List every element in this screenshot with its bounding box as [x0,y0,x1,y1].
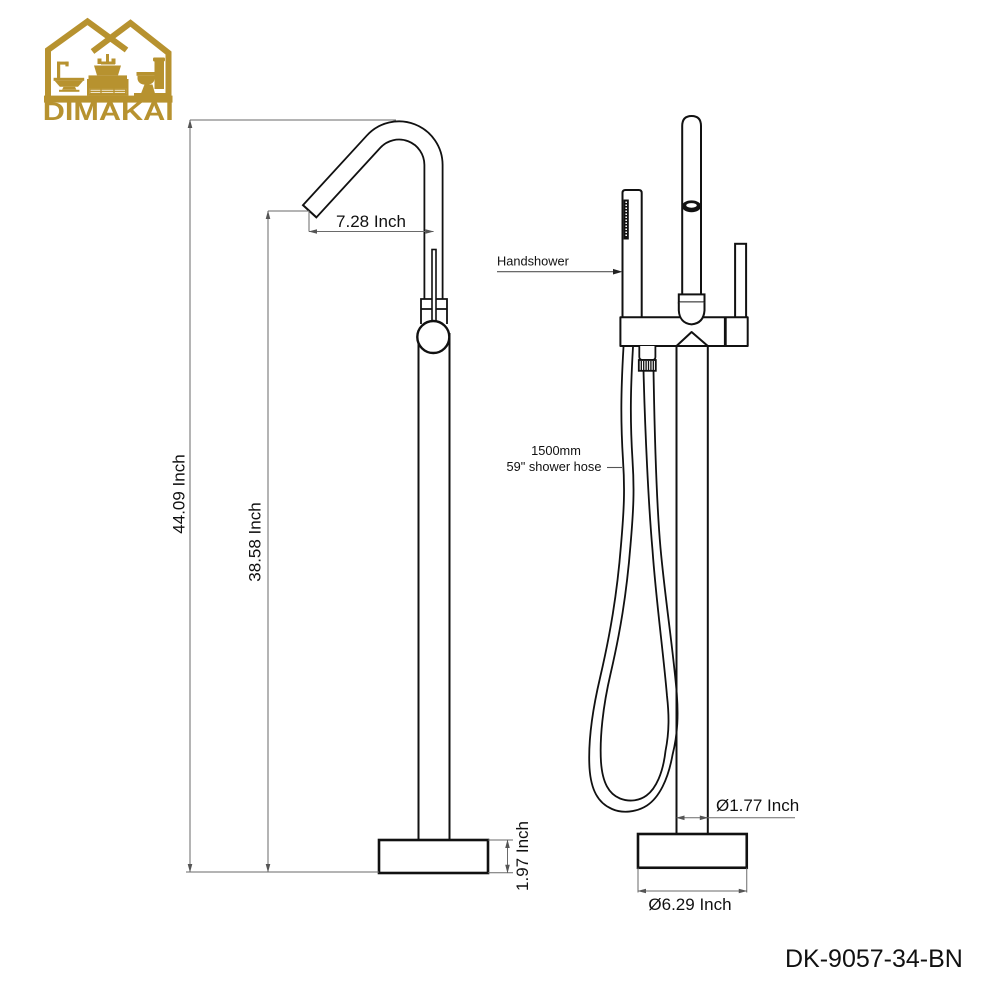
svg-text:Handshower: Handshower [497,254,570,269]
svg-text:DK-9057-34-BN: DK-9057-34-BN [785,945,963,973]
svg-text:Ø1.77 Inch: Ø1.77 Inch [716,796,799,815]
svg-text:Ø6.29 Inch: Ø6.29 Inch [648,895,731,914]
svg-text:1500mm: 1500mm [531,443,581,458]
svg-text:38.58 Inch: 38.58 Inch [246,502,265,581]
svg-text:1.97 Inch: 1.97 Inch [513,821,532,891]
svg-text:DIMAKAI: DIMAKAI [43,98,174,126]
svg-text:7.28 Inch: 7.28 Inch [336,212,406,231]
svg-text:59" shower hose: 59" shower hose [507,459,602,474]
svg-text:44.09 Inch: 44.09 Inch [170,454,189,533]
